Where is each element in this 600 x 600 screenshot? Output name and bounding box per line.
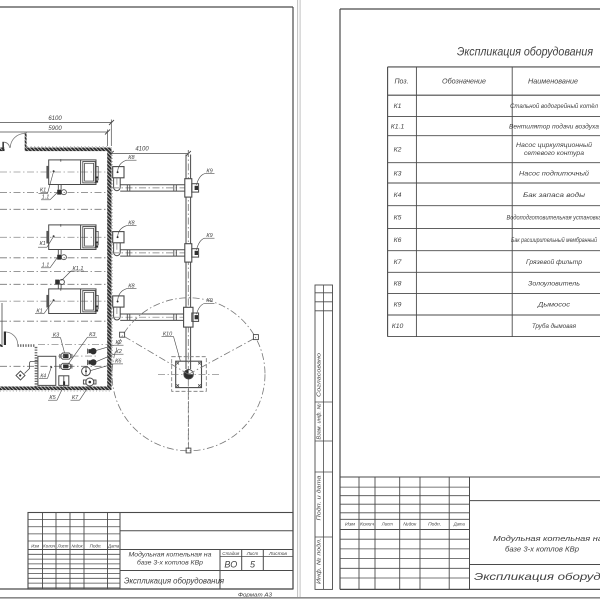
svg-text:Инф. № подл.: Инф. № подл. <box>316 538 322 584</box>
svg-text:Обозначение: Обозначение <box>442 78 486 86</box>
svg-text:Дата: Дата <box>453 521 465 526</box>
svg-text:К1.1: К1.1 <box>391 123 405 130</box>
svg-text:Экспликация оборудования: Экспликация оборудования <box>474 571 600 583</box>
svg-text:К6: К6 <box>394 237 402 244</box>
svg-text:5900: 5900 <box>48 126 62 132</box>
svg-text:К1: К1 <box>40 187 46 193</box>
svg-text:Насос подпиточный: Насос подпиточный <box>519 169 589 177</box>
svg-text:Стальной водогрейный котёл: Стальной водогрейный котёл <box>510 102 598 110</box>
svg-text:Лист: Лист <box>57 543 69 548</box>
svg-text:Водоподготовительная установка: Водоподготовительная установка <box>507 214 600 222</box>
svg-text:Изм: Изм <box>31 543 39 548</box>
svg-text:базе 3-х котлов КВр: базе 3-х котлов КВр <box>505 545 579 554</box>
svg-text:Грязевой фильтр: Грязевой фильтр <box>526 258 582 266</box>
svg-text:ВО: ВО <box>224 559 237 569</box>
svg-text:Изм: Изм <box>345 521 356 526</box>
svg-text:К8: К8 <box>394 280 402 287</box>
svg-text:Экспликация оборудования: Экспликация оборудования <box>457 47 593 59</box>
svg-text:Листов: Листов <box>268 551 288 556</box>
svg-text:Модульная котельная на: Модульная котельная на <box>129 552 213 558</box>
svg-text:Бак запаса воды: Бак запаса воды <box>523 191 585 199</box>
svg-text:№док: №док <box>403 521 417 526</box>
svg-text:К9: К9 <box>394 302 402 309</box>
svg-text:№док: №док <box>71 543 83 548</box>
svg-text:К10: К10 <box>392 323 404 330</box>
svg-text:Дымосос: Дымосос <box>537 302 571 309</box>
svg-text:Наименование: Наименование <box>528 79 578 86</box>
svg-text:Взам. инф. №: Взам. инф. № <box>316 403 322 440</box>
svg-text:Вентилятор подачи воздуха: Вентилятор подачи воздуха <box>509 122 599 130</box>
svg-text:Колич: Колич <box>360 521 375 526</box>
svg-text:Модульная котельная на: Модульная котельная на <box>493 534 600 543</box>
svg-text:4100: 4100 <box>135 147 149 153</box>
svg-text:сетевого контура: сетевого контура <box>524 150 584 157</box>
svg-text:Бак расширительный мембранный: Бак расширительный мембранный <box>511 236 597 244</box>
svg-text:К1: К1 <box>39 241 45 247</box>
svg-text:К3: К3 <box>394 170 402 177</box>
svg-text:Насос циркуляционный: Насос циркуляционный <box>516 141 592 149</box>
svg-text:Экспликация оборудования: Экспликация оборудования <box>124 576 225 585</box>
svg-text:Согласовано: Согласовано <box>316 353 322 397</box>
svg-text:Подп.: Подп. <box>90 543 102 548</box>
svg-text:Лист: Лист <box>246 551 259 556</box>
svg-text:6100: 6100 <box>48 116 62 122</box>
svg-text:Дата: Дата <box>107 543 120 548</box>
svg-text:Золоуловитель: Золоуловитель <box>528 280 581 287</box>
svg-text:Поз.: Поз. <box>394 79 408 86</box>
svg-text:Стадия: Стадия <box>222 551 240 556</box>
svg-text:Подп.: Подп. <box>428 521 441 526</box>
svg-text:Лист: Лист <box>381 521 393 526</box>
svg-text:Колич: Колич <box>43 543 56 548</box>
svg-text:К5: К5 <box>394 215 402 222</box>
svg-text:К7: К7 <box>394 259 402 266</box>
svg-text:К2: К2 <box>394 147 402 154</box>
svg-text:базе 3-х котлов КВр: базе 3-х котлов КВр <box>137 560 204 566</box>
svg-text:К4: К4 <box>394 192 402 199</box>
svg-text:Подп. и дата: Подп. и дата <box>316 476 322 521</box>
svg-text:Труба дымовая: Труба дымовая <box>532 322 576 330</box>
svg-text:К1: К1 <box>394 103 402 110</box>
